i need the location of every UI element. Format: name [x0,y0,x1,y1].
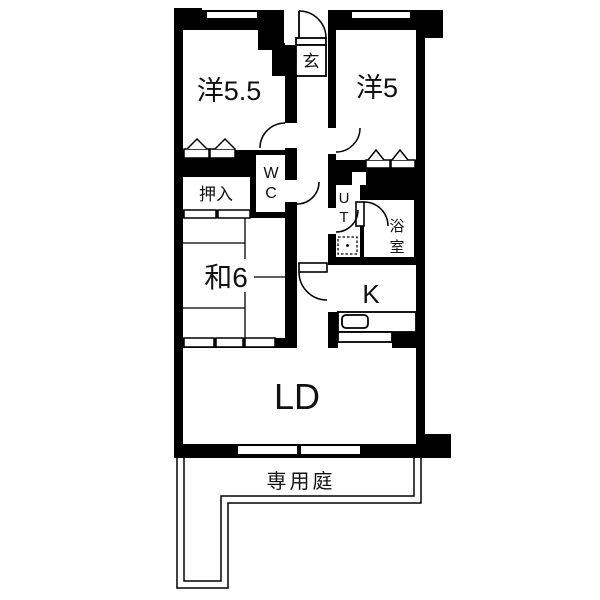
wc-floor [256,155,285,212]
oshiire-sliding-door-1 [184,210,216,218]
label-private-garden: 専用庭 [267,470,336,493]
window-top-left [207,12,257,18]
label-western-55: 洋5.5 [197,76,262,106]
floor-plan-page: 洋5.5 洋5 玄 W C 押入 U T 浴 室 和6 K LD 専用庭 [0,0,600,600]
label-living-dining: LD [274,376,320,417]
wall-niche [352,172,366,185]
western55-door-slot [285,123,297,148]
wc-door-slot [285,180,297,202]
closet55-cell-2 [210,149,235,158]
washitsu-sliding-door-2 [216,338,243,347]
pillar-bottom-right [423,434,451,458]
label-washitsu: 和6 [204,262,248,293]
label-utility-line1: U [339,190,350,207]
label-entrance: 玄 [303,52,320,71]
corridor-floor [297,43,328,348]
label-bath-line2: 室 [389,239,404,256]
ld-door-leaf [299,263,327,272]
washer-pan-dot [346,244,349,247]
window-bottom-left [238,446,297,454]
label-utility-line2: T [339,209,348,226]
washitsu-sliding-door-1 [184,338,214,347]
left-outer-wall [174,10,183,458]
entrance-side-wall [272,43,285,76]
kitchen-sink-icon [342,315,368,328]
oshiire-sliding-door-2 [218,210,250,218]
label-kitchen: K [362,279,380,309]
closet5-cell-2 [391,160,415,168]
closet5-cell-1 [366,160,390,168]
window-top-right [352,12,410,18]
label-wc-line1: W [263,165,279,182]
closet55-cell-1 [184,149,209,158]
label-oshiire: 押入 [199,185,233,204]
kitchen-lower-cabinet [338,332,392,342]
label-bath-line1: 浴 [389,218,404,235]
washitsu-sliding-door-3 [245,338,275,347]
floor-plan-drawing: 洋5.5 洋5 玄 W C 押入 U T 浴 室 和6 K LD 専用庭 [0,0,600,600]
western5-door-slot [328,128,336,154]
entrance-step [296,38,326,45]
label-western-5: 洋5 [356,73,398,103]
window-bottom-right [301,446,360,454]
utility-door-slot [328,208,336,234]
counter-left-wall [328,312,338,348]
label-wc-line2: C [265,185,277,202]
